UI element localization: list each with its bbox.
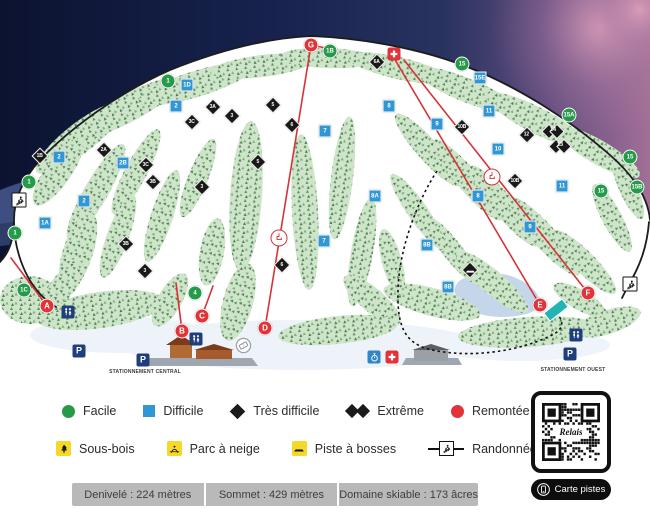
trail-marker-2b: 2B (117, 157, 130, 170)
legend-parc-a-neige-label: Parc à neige (190, 442, 260, 456)
stat-denivele: Denivelé : 224 mètres (72, 489, 204, 501)
parking-icon: P (137, 354, 150, 367)
trail-marker-8b: 8B (421, 239, 434, 252)
legend-extreme: Extrême (346, 404, 424, 418)
double-black-diamond-icon (346, 404, 369, 418)
first-aid-icon (388, 48, 401, 61)
legend-sous-bois: Sous-bois (56, 441, 135, 456)
lift-marker-c: C (195, 309, 210, 324)
trail-marker-8a: 8A (369, 190, 382, 203)
alpine-touring-icon (623, 277, 638, 292)
trail-marker-15: 15 (594, 184, 609, 199)
lift-marker-f: F (581, 286, 596, 301)
restroom-icon (570, 329, 583, 342)
trail-marker-15: 15 (455, 57, 470, 72)
blue-square-icon (143, 405, 155, 417)
stopwatch-icon (368, 351, 381, 364)
chairlift-icon (484, 169, 501, 186)
legend-difficulty: Facile Difficile Très difficile Extrême … (62, 404, 530, 418)
trail-marker-1: 1 (22, 175, 37, 190)
first-aid-icon (386, 351, 399, 364)
restroom-icon (62, 306, 75, 319)
svg-text:Relais: Relais (558, 427, 583, 437)
parking-label: STATIONNEMENT CENTRAL (109, 369, 181, 375)
trail-marker-4: 4 (188, 286, 203, 301)
parking-label: STATIONNEMENT OUEST (541, 367, 606, 373)
chairlift-icon (271, 230, 288, 247)
legend-facile: Facile (62, 404, 116, 418)
qr-code[interactable]: Relais (531, 391, 611, 473)
restroom-icon (190, 333, 203, 346)
trail-marker-9: 9 (431, 118, 444, 131)
trail-marker-1d: 1D (181, 79, 194, 92)
legend-tres-difficile-label: Très difficile (253, 404, 319, 418)
trail-marker-15b: 15B (630, 180, 645, 195)
stat-sommet: Sommet : 429 mètres (206, 489, 338, 501)
parking-icon: P (73, 345, 86, 358)
trail-marker-2: 2 (53, 151, 66, 164)
red-circle-icon (451, 405, 464, 418)
legend-piste-a-bosses: Piste à bosses (292, 441, 396, 456)
lift-marker-b: B (175, 324, 190, 339)
piste-map-page: 11B111C41515A1515B151D2222B1A77888A8B8B9… (0, 0, 650, 514)
qr-logo: Relais (555, 426, 586, 438)
trail-marker-10: 10 (492, 143, 505, 156)
legend-difficile-label: Difficile (163, 404, 203, 418)
trail-marker-14: 14 (543, 124, 564, 138)
moguls-icon (292, 441, 307, 456)
black-diamond-icon (230, 403, 246, 419)
alpine-touring-icon (428, 441, 464, 456)
stat-domaine-skiable: Domaine skiable : 173 âcres (339, 489, 478, 501)
alpine-touring-icon (12, 193, 27, 208)
legend-sous-bois-label: Sous-bois (79, 442, 135, 456)
trail-marker-1c: 1C (17, 283, 32, 298)
trail-marker-1a: 1A (39, 217, 52, 230)
map-illustration (0, 0, 650, 392)
carte-pistes-button[interactable]: Carte pistes (531, 479, 611, 500)
trail-marker-8: 8 (383, 100, 396, 113)
legend-extreme-label: Extrême (377, 404, 424, 418)
legend-features: Sous-bois Parc à neige Piste à bosses Ra… (56, 441, 574, 456)
trail-marker-13: 13 (550, 139, 571, 153)
stats-bar: Denivelé : 224 mètres Sommet : 429 mètre… (72, 483, 478, 506)
lift-marker-d: D (258, 321, 273, 336)
green-circle-icon (62, 405, 75, 418)
parking-icon: P (564, 348, 577, 361)
trail-marker-8b: 8B (442, 281, 455, 294)
trail-marker-11: 11 (483, 105, 496, 118)
trail-marker-9: 9 (524, 221, 537, 234)
carte-pistes-label: Carte pistes (555, 484, 606, 495)
trail-marker-2: 2 (78, 195, 91, 208)
trail-marker-1: 1 (161, 74, 176, 89)
trail-marker-8: 8 (472, 190, 485, 203)
trail-map: 11B111C41515A1515B151D2222B1A77888A8B8B9… (0, 0, 650, 392)
legend-remontee: Remontée (451, 404, 530, 418)
lift-marker-g: G (304, 38, 319, 53)
lift-marker-a: A (40, 299, 55, 314)
trail-marker-15: 15 (623, 150, 638, 165)
trail-marker-2: 2 (170, 100, 183, 113)
legend-tres-difficile: Très difficile (230, 404, 319, 418)
trail-marker-15e: 15E (474, 72, 487, 85)
legend-parc-a-neige: Parc à neige (167, 441, 260, 456)
legend-difficile: Difficile (143, 404, 203, 418)
legend-remontee-label: Remontée (472, 404, 530, 418)
legend-facile-label: Facile (83, 404, 116, 418)
trail-marker-15a: 15A (562, 108, 577, 123)
phone-icon (537, 483, 550, 496)
glades-icon (56, 441, 71, 456)
trail-marker-1: 1 (8, 226, 23, 241)
terrain-park-icon (167, 441, 182, 456)
trail-marker-11: 11 (556, 180, 569, 193)
legend-piste-a-bosses-label: Piste à bosses (315, 442, 396, 456)
trail-marker-7: 7 (318, 235, 331, 248)
trail-marker-1b: 1B (323, 44, 338, 59)
ticket-office-icon (235, 337, 252, 354)
trail-marker-7: 7 (319, 125, 332, 138)
